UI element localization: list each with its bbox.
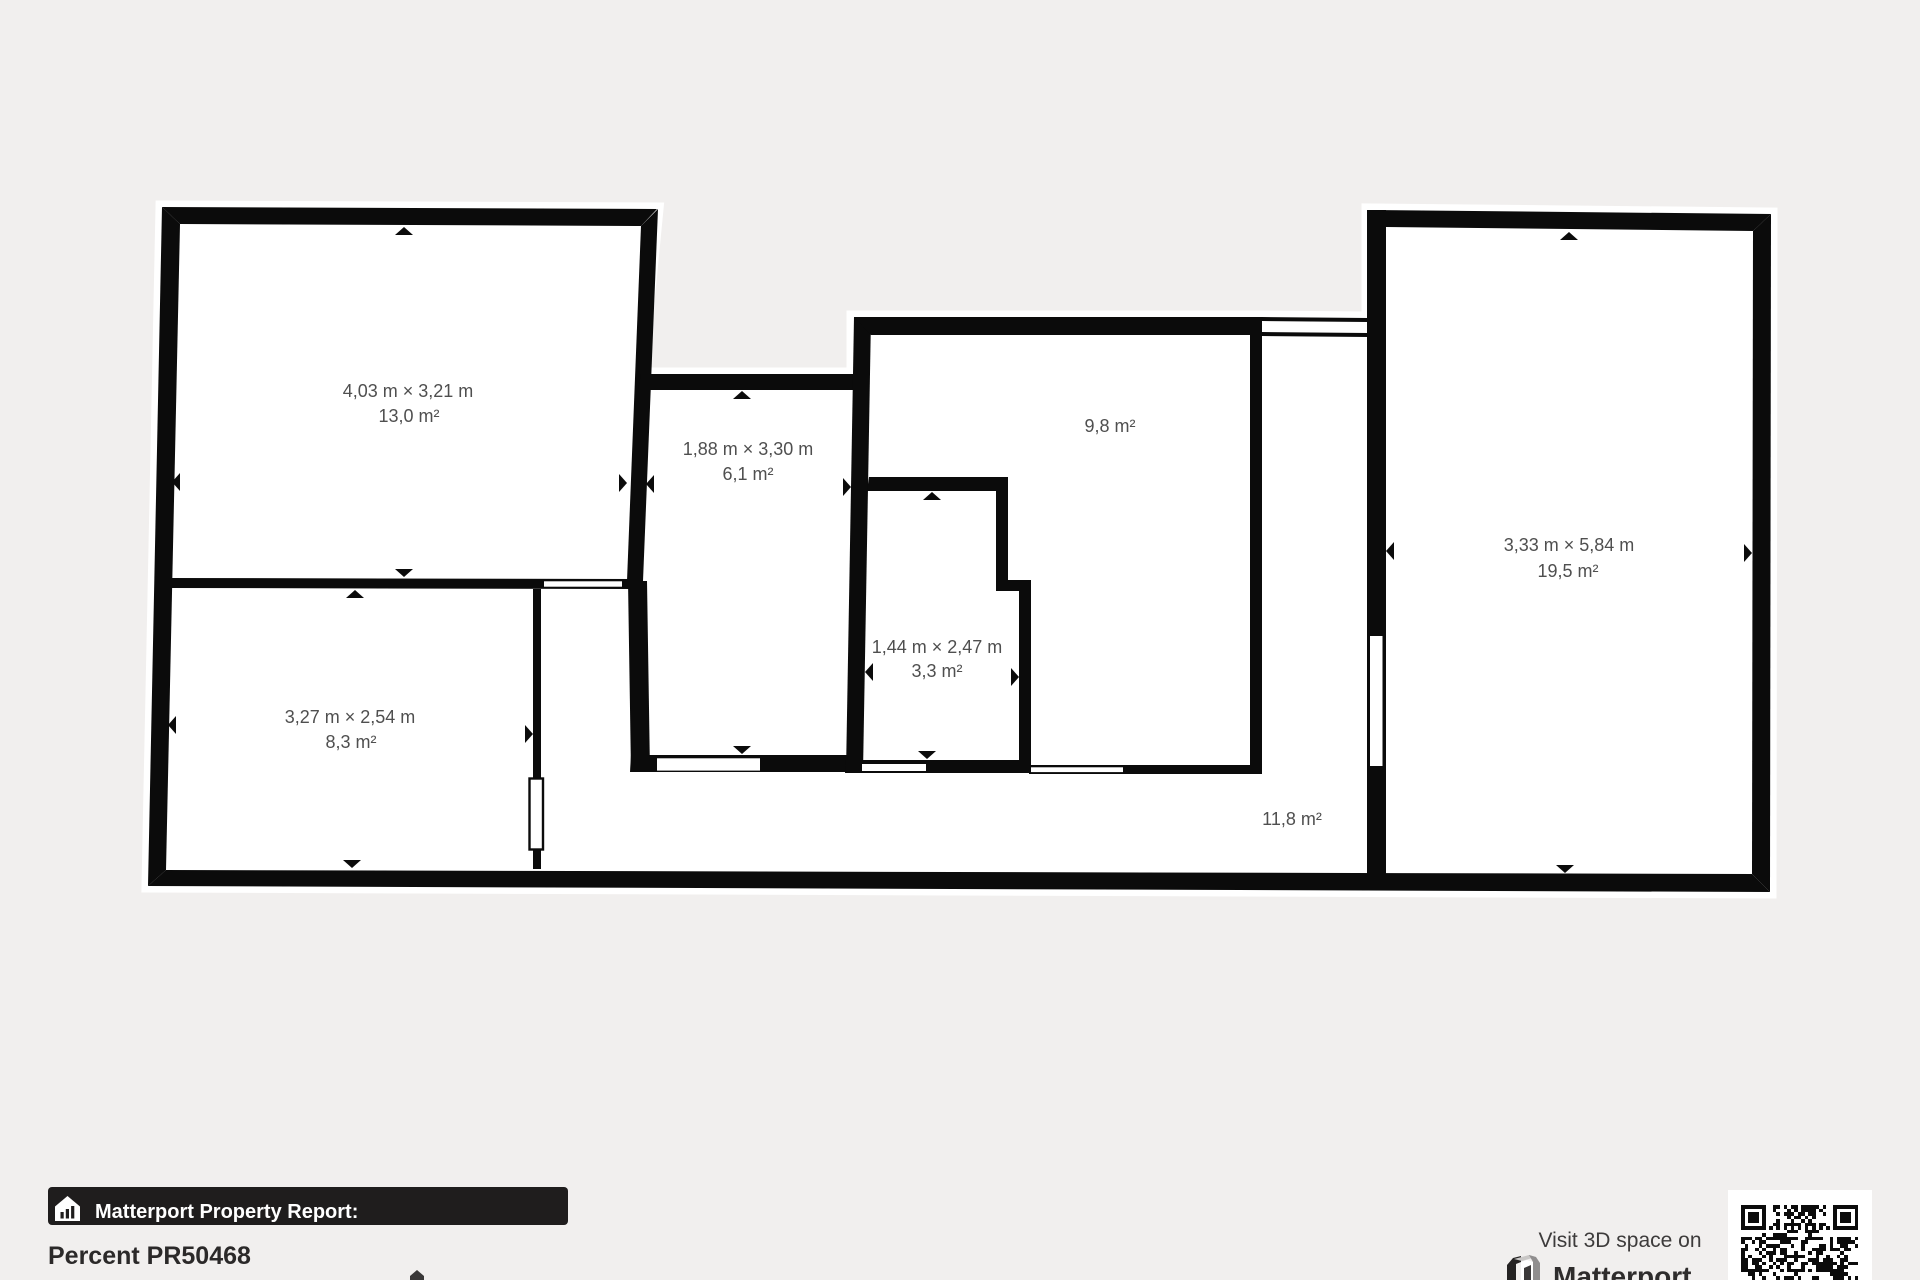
- svg-text:9,8 m²: 9,8 m²: [1084, 416, 1135, 436]
- svg-text:3,27 m × 2,54 m: 3,27 m × 2,54 m: [285, 707, 416, 727]
- svg-text:4,03 m × 3,21 m: 4,03 m × 3,21 m: [343, 381, 474, 401]
- svg-text:13,0 m²: 13,0 m²: [378, 406, 439, 426]
- svg-text:Matterport Property Report:: Matterport Property Report:: [95, 1201, 358, 1223]
- svg-text:11,8 m²: 11,8 m²: [1262, 809, 1322, 829]
- svg-text:19,5 m²: 19,5 m²: [1537, 561, 1598, 581]
- svg-text:8,3 m²: 8,3 m²: [325, 732, 376, 752]
- svg-text:3,3 m²: 3,3 m²: [911, 661, 962, 681]
- svg-text:Matterport: Matterport: [1553, 1261, 1691, 1280]
- svg-text:Visit 3D space on: Visit 3D space on: [1538, 1229, 1701, 1252]
- svg-text:6,1 m²: 6,1 m²: [722, 464, 773, 484]
- svg-text:3,33 m × 5,84 m: 3,33 m × 5,84 m: [1504, 535, 1635, 555]
- svg-text:1,88 m × 3,30 m: 1,88 m × 3,30 m: [683, 439, 814, 459]
- svg-text:Percent PR50468: Percent PR50468: [48, 1242, 251, 1270]
- svg-text:1,44 m × 2,47 m: 1,44 m × 2,47 m: [872, 637, 1003, 657]
